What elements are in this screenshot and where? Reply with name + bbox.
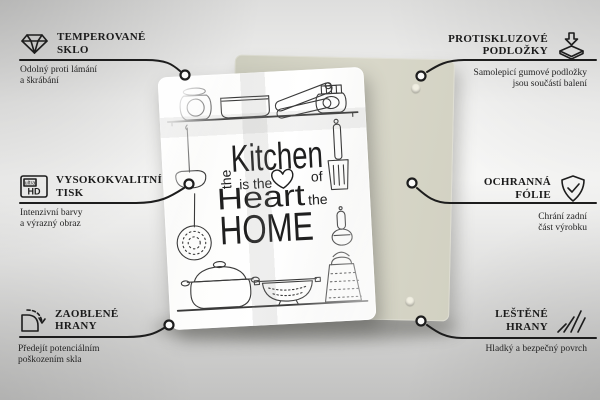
saucepan-icon xyxy=(221,96,270,118)
callout-title: OCHRANNÁ xyxy=(484,176,551,188)
rubber-pad xyxy=(405,296,414,305)
callout-protective-film: OCHRANNÁ FÓLIE Chrání zadní část výrobku xyxy=(407,174,587,234)
callout-title: VYSOKOKVALITNÍ xyxy=(56,174,162,186)
shelf-line-bottom xyxy=(178,301,368,311)
casserole-pot-icon xyxy=(180,260,260,310)
callout-title: SKLO xyxy=(57,44,89,56)
callout-title: FÓLIE xyxy=(515,189,551,201)
callout-title: LEŠTĚNÉ xyxy=(495,308,548,320)
anti-slip-pad-icon xyxy=(556,31,587,59)
callout-high-quality-print: ultra HD VYSOKOKVALITNÍ TISK Intenzivní … xyxy=(20,174,175,230)
box-grater-icon xyxy=(323,251,362,302)
callout-title: ZAOBLENÉ xyxy=(55,308,119,320)
shield-check-icon xyxy=(559,174,587,203)
callout-title: HRANY xyxy=(55,320,97,332)
callout-subtext: část výrobku xyxy=(538,223,587,233)
ladle-icon xyxy=(173,124,206,188)
diamond-icon xyxy=(20,31,49,56)
callout-subtext: a škrábání xyxy=(20,76,59,86)
callout-title: TEMPEROVANÉ xyxy=(57,31,146,43)
callout-subtext: a výrazný obraz xyxy=(20,219,81,229)
word-of: of xyxy=(310,168,323,185)
design-typography: the Kitchen is the of Heart the HOME xyxy=(214,134,330,254)
kitchen-line-art: the Kitchen is the of Heart the HOME xyxy=(158,67,377,330)
callout-tempered-glass: TEMPEROVANÉ SKLO Odolný proti lámání a š… xyxy=(20,31,175,87)
ultra-hd-icon: ultra HD xyxy=(20,175,48,198)
colander-icon xyxy=(254,277,321,306)
callout-subtext: Hladký a bezpečný povrch xyxy=(485,344,587,354)
shelf-line-top xyxy=(168,112,358,122)
peeler-icon xyxy=(331,206,353,245)
callout-title: PROTISKLUZOVÉ xyxy=(448,33,548,45)
callout-subtext: Intenzivní barvy xyxy=(20,208,83,218)
callout-subtext: Chrání zadní xyxy=(538,212,587,222)
callout-title: TISK xyxy=(56,187,84,199)
callout-polished-edges: LEŠTĚNÉ HRANY Hladký a bezpečný povrch xyxy=(407,307,587,355)
callout-subtext: Odolný proti lámání xyxy=(20,65,97,75)
polished-edge-icon xyxy=(556,307,587,334)
callout-rounded-edges: ZAOBLENÉ HRANY Předejít potenciálním poš… xyxy=(18,306,175,366)
callout-anti-slip-pads: PROTISKLUZOVÉ PODLOŽKY Samolepicí gumové… xyxy=(407,31,587,90)
rounded-corner-icon xyxy=(18,306,47,334)
callout-subtext: Předejít potenciálním xyxy=(18,344,100,354)
callout-subtext: Samolepicí gumové podložky xyxy=(474,68,587,78)
callout-title: PODLOŽKY xyxy=(483,45,548,57)
callout-subtext: jsou součástí balení xyxy=(513,79,587,89)
callout-subtext: poškozením skla xyxy=(18,355,82,365)
slotted-turner-icon xyxy=(326,119,350,190)
callout-title: HRANY xyxy=(506,321,548,333)
skimmer-icon xyxy=(175,193,212,261)
product-glass-board: the Kitchen is the of Heart the HOME xyxy=(158,67,377,330)
jar-icon xyxy=(179,87,212,120)
ultra-hd-icon-text-bottom: HD xyxy=(28,187,41,197)
word-home: HOME xyxy=(219,205,315,254)
